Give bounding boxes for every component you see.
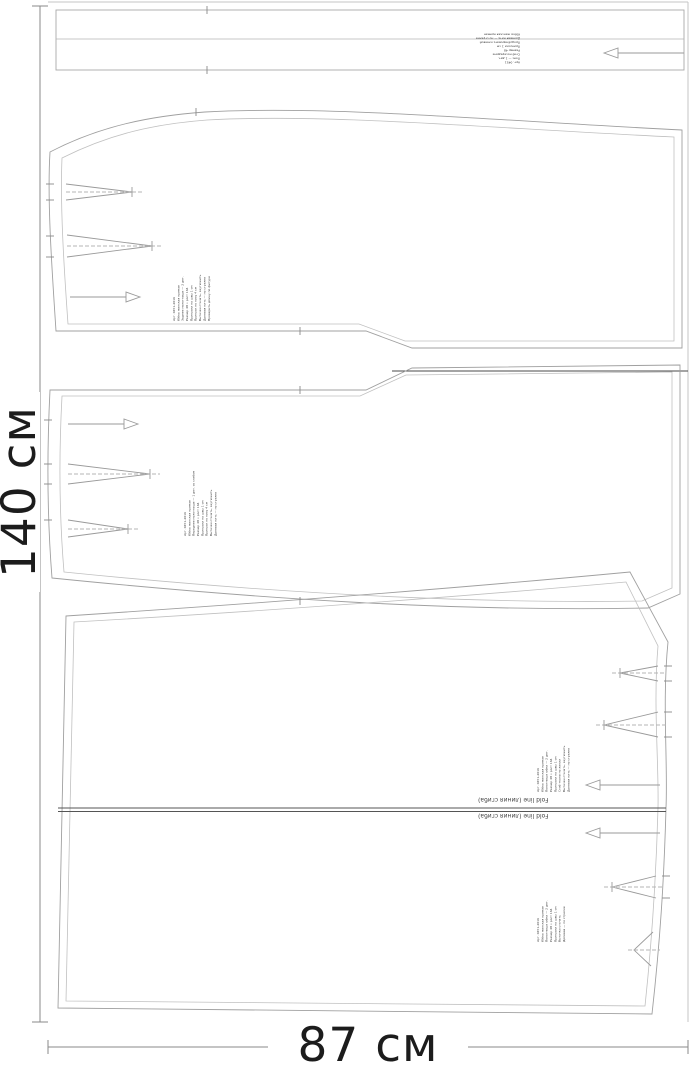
- bottom-panel-info-line: Долевая нить — по стрелке: [566, 676, 570, 792]
- bottom-panel-grain-arrow-2: [586, 828, 660, 838]
- pattern-drawing: [0, 0, 689, 1080]
- bottom-panel-notches: [300, 597, 672, 898]
- middle-panel-info-line: Долевая нить — по стрелке: [213, 410, 217, 536]
- bottom-panel-dart-2: [596, 712, 666, 737]
- waistband-info-line: Долевая нить — по стрелке: [424, 36, 520, 40]
- upper-panel-info-line: Проверить длину по фигуре: [207, 203, 211, 321]
- bottom-panel-dart-4: [628, 932, 660, 966]
- upper-panel-cut-line: [49, 110, 682, 348]
- pattern-layout-sheet: 140 см 87 см Арт. 0451 Пояс — 1 дет. Сги…: [0, 0, 689, 1080]
- fold-line-caption-top: Fold line (линия сгиба): [478, 796, 549, 803]
- fold-line-caption-bottom: Fold line (линия сгиба): [478, 812, 549, 819]
- upper-panel-dart-1: [66, 184, 142, 200]
- waistband-grain-arrow: [604, 48, 684, 58]
- upper-panel-stitch-line: [61, 118, 674, 341]
- waistband-info-line: Припуски 1 см: [424, 44, 520, 48]
- bottom-panel-cut-line: [58, 572, 668, 1014]
- middle-panel-grain-arrow: [68, 419, 138, 429]
- waistband-info-line: Арт. 0451: [424, 60, 520, 64]
- width-dimension-label: 87 см: [268, 1018, 468, 1070]
- waistband-info-text: Арт. 0451 Пояс — 1 дет. Сгиб посередине …: [424, 32, 520, 64]
- bottom-panel-info-text-2: Арт. 0451-2016 Юбка женская прямая Полот…: [536, 836, 566, 942]
- upper-panel-grain-arrow: [70, 292, 140, 302]
- middle-panel-cut-line: [48, 365, 680, 609]
- waistband-info-line: Юбка женская прямая: [424, 32, 520, 36]
- middle-panel-info-text: Арт. 0451-2016 Юбка женская прямая Перед…: [183, 410, 218, 536]
- height-dimension-label: 140 см: [0, 392, 40, 592]
- upper-panel-info-text: Арт. 0451-2016 Юбка женская прямая Задне…: [172, 203, 211, 321]
- bottom-panel-fold-line: [58, 808, 666, 812]
- middle-panel-stitch-line: [60, 372, 672, 601]
- bottom-panel-stitch-line: [66, 582, 658, 1006]
- waistband-info-line: Размер 48: [424, 48, 520, 52]
- middle-panel-dart-1: [68, 464, 160, 484]
- middle-panel-dart-2: [68, 520, 138, 537]
- upper-panel-dart-2: [67, 235, 162, 257]
- waistband-info-line: Пояс — 1 дет.: [424, 56, 520, 60]
- bottom-panel-info-text-1: Арт. 0451-2016 Юбка женская прямая Полот…: [536, 676, 571, 792]
- bottom-panel-grain-arrow-1: [586, 780, 660, 790]
- bottom-panel-dart-1: [612, 666, 666, 681]
- waistband-info-line: Продублировать клеевой: [424, 40, 520, 44]
- bottom-panel-info-line: Долевая — по стрелке: [562, 836, 566, 942]
- waistband-piece-outline: [56, 10, 684, 70]
- middle-panel-notches: [44, 386, 300, 520]
- waistband-info-line: Сгиб посередине: [424, 52, 520, 56]
